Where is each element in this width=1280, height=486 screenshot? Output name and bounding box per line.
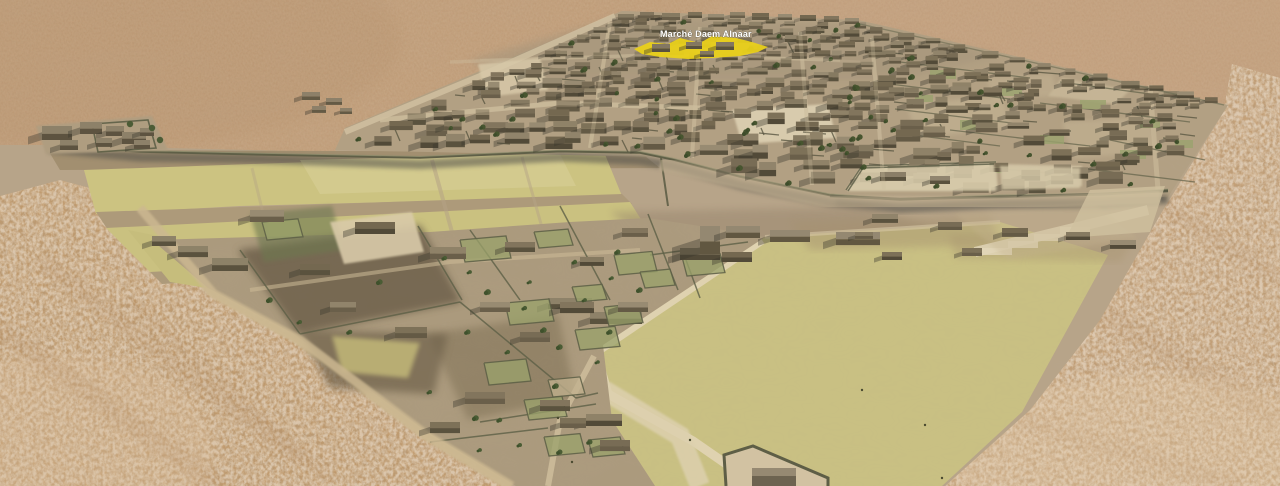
svg-text:Marché Daem Alnaar: Marché Daem Alnaar (660, 29, 752, 39)
